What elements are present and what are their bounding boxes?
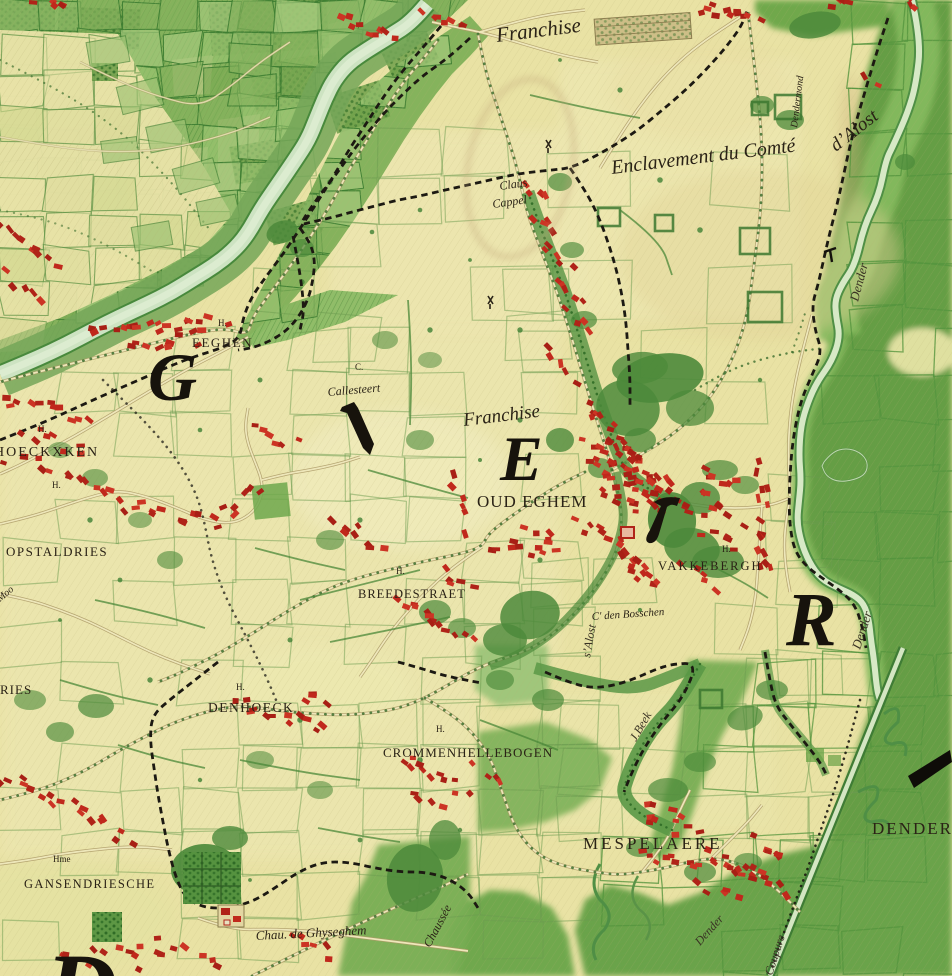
svg-text:CROMMENHELLEBOGEN: CROMMENHELLEBOGEN bbox=[383, 745, 553, 760]
svg-text:H.: H. bbox=[218, 318, 227, 328]
svg-text:H.: H. bbox=[396, 566, 405, 576]
svg-text:C.: C. bbox=[355, 362, 363, 372]
svg-text:H.: H. bbox=[722, 544, 731, 554]
svg-text:D: D bbox=[44, 933, 117, 976]
svg-text:H.: H. bbox=[52, 480, 61, 490]
svg-text:VAKKEBERGH: VAKKEBERGH bbox=[658, 559, 763, 573]
svg-text:HOECKXKEN: HOECKXKEN bbox=[0, 445, 99, 460]
svg-text:MESPELAERE: MESPELAERE bbox=[583, 834, 723, 853]
svg-text:RIES: RIES bbox=[0, 682, 32, 697]
svg-text:EEGHEN: EEGHEN bbox=[192, 335, 253, 350]
svg-text:H.: H. bbox=[38, 424, 47, 434]
svg-text:DENDER: DENDER bbox=[872, 819, 952, 838]
svg-text:R: R bbox=[785, 578, 837, 662]
svg-text:H.: H. bbox=[236, 682, 245, 692]
svg-text:E: E bbox=[499, 423, 543, 494]
svg-text:G: G bbox=[148, 339, 197, 415]
svg-text:Hme: Hme bbox=[53, 854, 71, 864]
svg-text:OPSTALDRIES: OPSTALDRIES bbox=[6, 544, 108, 559]
svg-text:OUD EGHEM: OUD EGHEM bbox=[477, 492, 588, 511]
svg-text:BREEDESTRAET: BREEDESTRAET bbox=[358, 587, 466, 601]
svg-text:H.: H. bbox=[436, 724, 445, 734]
svg-text:DENHOECK: DENHOECK bbox=[208, 700, 294, 715]
svg-text:GANSENDRIESCHE: GANSENDRIESCHE bbox=[24, 877, 155, 891]
